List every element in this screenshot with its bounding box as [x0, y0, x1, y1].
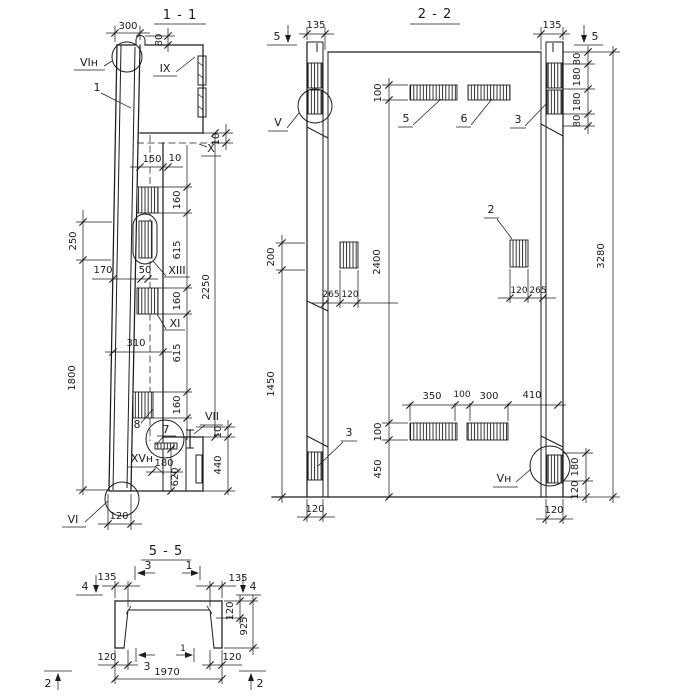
cut-mark-2-left: 2 [45, 677, 52, 690]
dim-120-low: 120 [570, 480, 581, 499]
lifting-loop [136, 36, 145, 45]
part-label-3-bottom: 3 [346, 426, 353, 439]
dim-120-foot-left: 120 [305, 504, 324, 515]
dim-250: 250 [68, 231, 79, 250]
cut-mark-5-right: 5 [592, 30, 599, 43]
dim-135-left: 135 [306, 20, 325, 31]
dim-135-left: 135 [97, 572, 116, 583]
part-label-8: 8 [134, 418, 141, 431]
section-view-2-2: 2 - 2 5 5 135 135 80 180 180 80 100 5 6 … [266, 7, 620, 524]
dim-265-right: 265 [529, 286, 546, 296]
part-label-5: 5 [403, 112, 410, 125]
dim-310: 310 [126, 338, 145, 349]
dim-615-a: 615 [172, 240, 183, 259]
section-view-1-1: 1 - 1 300 80 VIн 1 IX X 10 150 10 250 17… [62, 8, 235, 530]
dim-80-b: 80 [572, 115, 583, 128]
rebar-symbol [410, 85, 457, 100]
dim-410: 410 [522, 390, 541, 401]
dim-350: 350 [422, 391, 441, 402]
rebar-symbol [467, 423, 508, 440]
slot [196, 455, 202, 483]
rebar-symbol [468, 85, 510, 100]
detail-label-7: 7 [163, 423, 170, 436]
dim-80-a: 80 [572, 53, 583, 66]
drawing-canvas: 1 - 1 300 80 VIн 1 IX X 10 150 10 250 17… [0, 0, 700, 700]
detail-label-ix: IX [160, 62, 171, 75]
cut-mark-1-bottom: 1 [180, 644, 186, 654]
dim-120-right: 120 [510, 286, 527, 296]
dim-615-b: 615 [172, 343, 183, 362]
cut-mark-3-bottom: 3 [144, 660, 151, 673]
dim-120-left: 120 [341, 290, 358, 300]
cut-mark-3-top: 3 [145, 559, 152, 572]
dim-620: 620 [170, 467, 181, 486]
cut-mark-1-top: 1 [186, 559, 193, 572]
blueprint-page: 1 - 1 300 80 VIн 1 IX X 10 150 10 250 17… [0, 0, 700, 700]
cut-mark-5-left: 5 [274, 30, 281, 43]
cut-mark-2-right: 2 [257, 677, 264, 690]
dim-10-top: 10 [211, 133, 222, 146]
dim-120-side: 120 [225, 601, 236, 620]
rebar-symbol [137, 187, 158, 213]
cut-mark-4-right: 4 [250, 580, 257, 593]
part-label-3-top: 3 [515, 113, 522, 126]
detail-label-xi: XI [170, 317, 181, 330]
dim-180-b: 180 [572, 92, 583, 111]
dim-160-b: 160 [172, 291, 183, 310]
dim-50: 50 [139, 265, 152, 276]
section-view-5-5: 5 - 5 4 4 135 135 3 1 120 925 120 120 3 … [44, 544, 266, 690]
view-title-5-5: 5 - 5 [149, 544, 184, 559]
dim-180-a: 180 [572, 67, 583, 86]
dim-1970: 1970 [154, 667, 179, 678]
dim-170: 170 [93, 265, 112, 276]
detail-label-xv: XVн [131, 452, 153, 465]
dim-135-right: 135 [542, 20, 561, 31]
part-label-1: 1 [94, 81, 101, 94]
dim-2250: 2250 [201, 274, 212, 299]
dim-160-a: 160 [172, 190, 183, 209]
dim-440: 440 [213, 455, 224, 474]
hook-embed [198, 88, 206, 117]
panel-outline-1-1 [109, 36, 212, 491]
rebar-symbol [308, 90, 322, 114]
dim-2400: 2400 [372, 249, 383, 274]
rebar-symbol [547, 455, 562, 483]
dim-1450: 1450 [266, 371, 277, 396]
dim-10-mid: 10 [169, 153, 182, 164]
detail-label-xiii: XIII [168, 264, 185, 277]
part-label-6: 6 [461, 112, 468, 125]
detail-label-vii: VII [205, 410, 219, 423]
dim-925: 925 [239, 616, 250, 635]
cut-mark-4-left: 4 [82, 580, 89, 593]
dim-180-low: 180 [570, 457, 581, 476]
dim-120-foot-right: 120 [544, 505, 563, 516]
rebar-symbol [340, 242, 358, 268]
detail-label-vi-bottom: VI [68, 513, 79, 526]
dim-100-low: 100 [373, 422, 384, 441]
rebar-symbol [139, 221, 152, 258]
view-title-2-2: 2 - 2 [418, 7, 453, 22]
dim-120: 120 [109, 511, 128, 522]
dim-450: 450 [373, 459, 384, 478]
rebar-symbol [547, 90, 562, 114]
dim-100-mid: 100 [453, 390, 470, 400]
dim-100-top: 100 [373, 83, 384, 102]
rebar-symbol [137, 288, 158, 314]
hook-embed [198, 56, 206, 85]
detail-label-v: V [274, 116, 282, 129]
dim-1800: 1800 [67, 365, 78, 390]
dim-135-right: 135 [228, 573, 247, 584]
rebar-2-2 [308, 63, 562, 483]
dim-180: 180 [154, 458, 173, 469]
dim-300: 300 [479, 391, 498, 402]
detail-label-vi-top: VIн [80, 56, 98, 69]
dim-120-bottom-right: 120 [222, 652, 241, 663]
detail-label-vn: Vн [497, 472, 512, 485]
dim-150: 150 [142, 154, 161, 165]
rebar-symbol [510, 240, 528, 267]
dim-300: 300 [118, 21, 137, 32]
rebar-symbol [410, 423, 457, 440]
dim-80: 80 [154, 34, 165, 47]
part-label-2: 2 [488, 203, 495, 216]
rebar-symbol [308, 63, 322, 88]
dim-10-low: 10 [213, 426, 224, 439]
dim-265-left: 265 [322, 290, 339, 300]
dim-3280: 3280 [596, 243, 607, 268]
dim-120-bottom-left: 120 [97, 652, 116, 663]
view-title-1-1: 1 - 1 [163, 8, 198, 23]
dim-160-c: 160 [172, 395, 183, 414]
rebar-symbol [133, 392, 153, 418]
channel-outline-5-5 [115, 601, 222, 648]
rebar-symbol [547, 63, 562, 88]
dim-200: 200 [266, 247, 277, 266]
rebar-symbol [308, 452, 322, 480]
